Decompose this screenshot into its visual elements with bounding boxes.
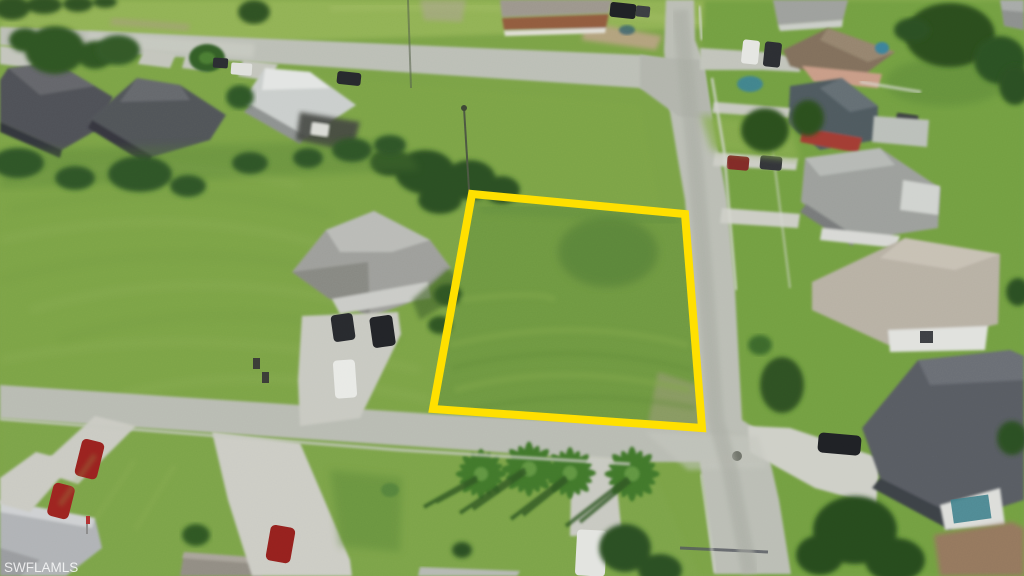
svg-text:SWFLAMLS: SWFLAMLS	[4, 560, 78, 575]
